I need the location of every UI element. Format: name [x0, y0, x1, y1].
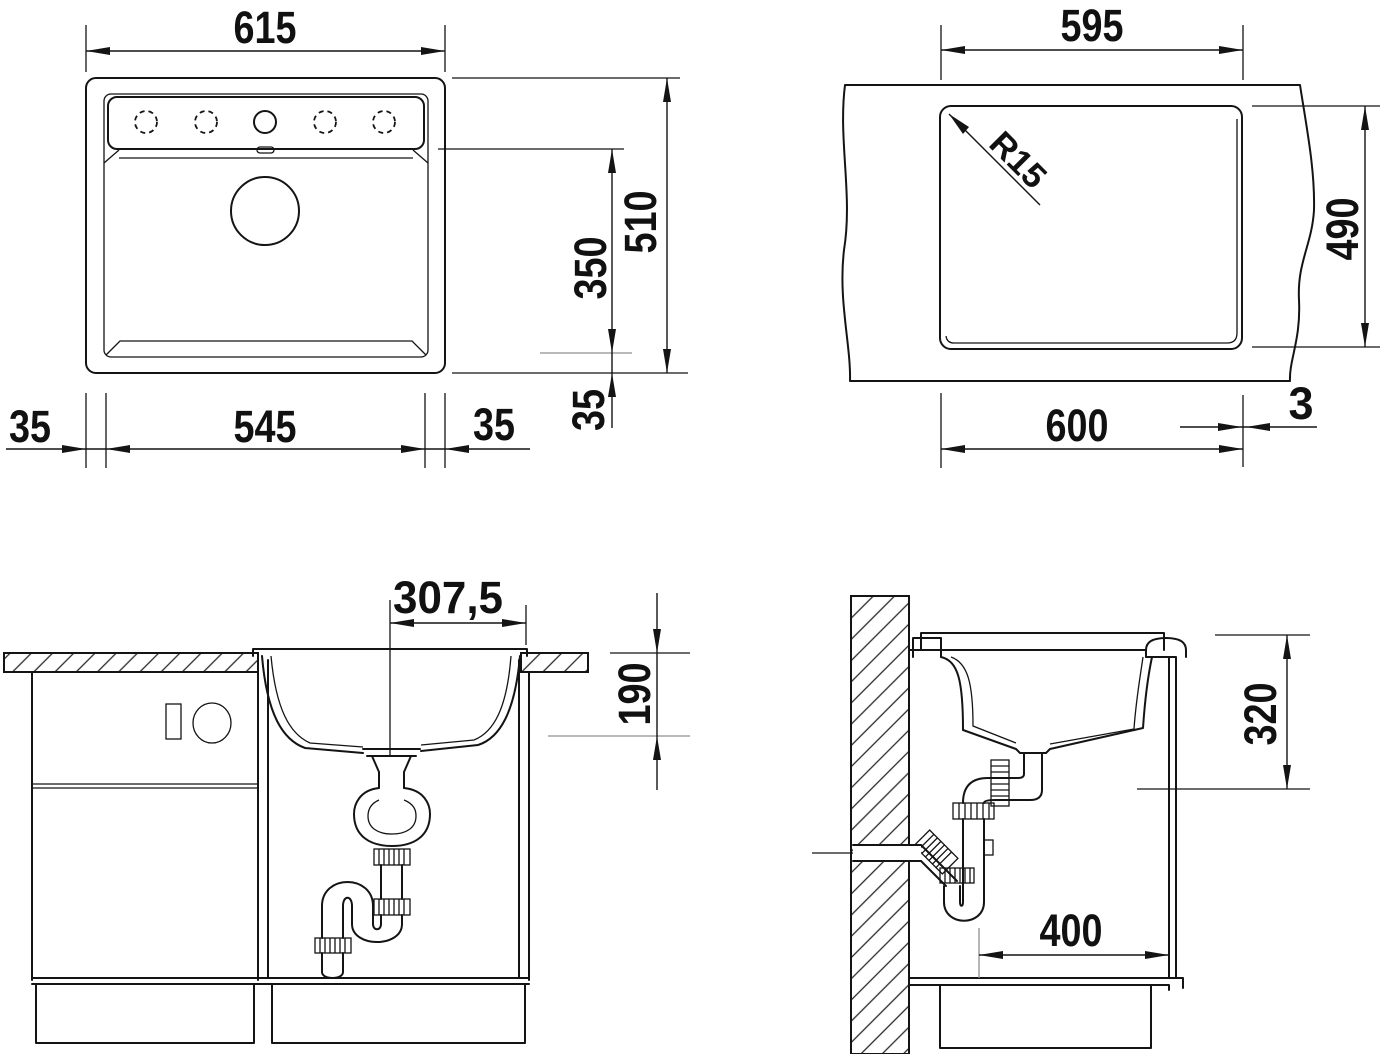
dim-bowl-right-offset: 35: [473, 399, 515, 450]
view-side-section: 320 400: [812, 596, 1310, 1054]
view-cutout: R15 595 490 600 3: [842, 0, 1380, 468]
drawer-divider: [32, 784, 258, 788]
dim-bowl-inner-depth: 350: [565, 237, 616, 300]
union-nut: [953, 803, 994, 819]
bowl-inner: [951, 657, 1143, 744]
worktop-outline: [842, 85, 1314, 381]
front-rim: [1146, 638, 1186, 657]
union-nut: [315, 938, 351, 953]
cabinet-floor: [32, 978, 529, 984]
dim-bowl-width: 545: [234, 401, 297, 452]
cabinet-walls: [32, 660, 529, 980]
wall-pipe-break: [853, 846, 921, 860]
bowl-bottom-bevel: [106, 341, 426, 355]
union-nut: [374, 899, 410, 915]
view-front-section: 307,5 190: [4, 572, 690, 1043]
deck-bevel: [104, 150, 428, 163]
sink-outline: [86, 78, 445, 373]
tailpipe: [1024, 753, 1042, 770]
dim-rear-edge-gap: 3: [1288, 378, 1313, 429]
faucet-hole: [135, 111, 157, 133]
drain-tailpiece: [363, 749, 420, 788]
faucet-deck: [108, 97, 424, 149]
worktop-section-left: [4, 653, 258, 672]
trap-ring-outer: [354, 788, 430, 846]
dim-drain-centerline-offset: 307,5: [393, 572, 503, 623]
plinth-side: [940, 985, 1151, 1048]
appliance-switch: [166, 704, 181, 739]
spec-sheet: 615 510 350 35 35 545 35 R15: [0, 0, 1385, 1054]
dim-cutout-depth: 490: [1317, 198, 1368, 261]
trap-ring-inner: [368, 800, 416, 834]
bowl-wall-inner: [271, 656, 511, 747]
dim-min-cabinet-width: 600: [1046, 400, 1109, 451]
cutout-outline: [940, 106, 1242, 349]
dim-bowl-left-offset: 35: [9, 401, 51, 452]
dim-cutout-width: 595: [1061, 0, 1124, 51]
faucet-hole-main: [254, 111, 276, 133]
drain-hole: [231, 177, 299, 245]
cabinet-floor-side: [909, 978, 1183, 990]
worktop-side: [909, 633, 1164, 650]
plinth: [36, 984, 525, 1043]
branch-cap: [984, 840, 993, 855]
wall-section: [851, 596, 909, 1054]
appliance-knob: [193, 703, 231, 743]
union-nut: [374, 849, 410, 865]
cabinet-side-wall: [1146, 657, 1176, 978]
dim-overall-depth: 510: [615, 191, 666, 254]
dim-clearance-height: 320: [1235, 683, 1286, 746]
faucet-hole: [373, 111, 395, 133]
dim-corner-radius: R15: [982, 124, 1054, 196]
faucet-hole: [195, 111, 217, 133]
outlet-stub: [322, 953, 343, 978]
dim-overall-width: 615: [234, 2, 297, 53]
drawing-canvas: 615 510 350 35 35 545 35 R15: [0, 0, 1385, 1054]
view-top: 615 510 350 35 35 545 35: [6, 2, 688, 468]
outlet-leg: [322, 906, 343, 938]
dim-bowl-front-offset: 35: [563, 389, 614, 431]
faucet-hole: [314, 111, 336, 133]
dim-min-cabinet-depth: 400: [1040, 905, 1103, 956]
rear-rim: [913, 638, 941, 657]
dim-bowl-depth: 190: [609, 663, 660, 726]
bowl-wall-outer: [262, 656, 520, 753]
s-bend-upper: [322, 882, 373, 906]
worktop-section-right: [521, 653, 588, 672]
trap-pipe: [381, 865, 402, 899]
